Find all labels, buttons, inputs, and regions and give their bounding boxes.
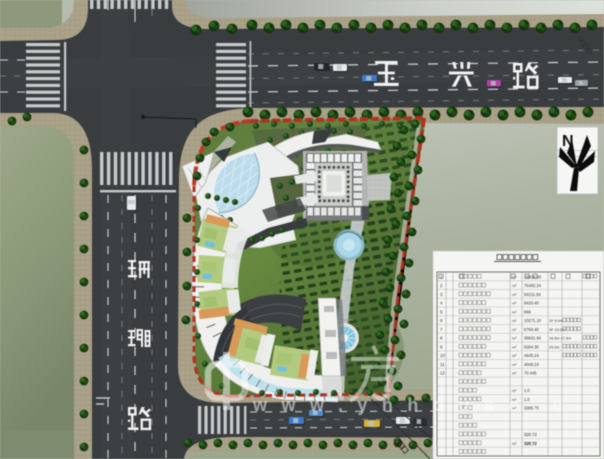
svg-text:54211.84: 54211.84: [524, 292, 541, 297]
svg-text:m²: m²: [512, 336, 517, 341]
svg-text:m²: m²: [512, 327, 517, 332]
svg-text:24.0m: 24.0m: [549, 345, 560, 349]
svg-text:36821.94: 36821.94: [524, 336, 542, 341]
svg-text:6756.40: 6756.40: [524, 327, 540, 332]
svg-text:m²: m²: [512, 353, 517, 358]
svg-text:m²: m²: [512, 301, 517, 306]
svg-text:m²: m²: [512, 318, 517, 323]
svg-text:m²: m²: [512, 362, 517, 367]
svg-text:www.ynhouse.c: www.ynhouse.c: [252, 395, 577, 415]
svg-text:10: 10: [440, 353, 445, 358]
svg-text:3F 15.0m: 3F 15.0m: [549, 328, 565, 332]
svg-text:1F 5.0m: 1F 5.0m: [549, 319, 563, 323]
svg-text:70.445: 70.445: [524, 371, 537, 376]
svg-text:16.5m 17.4m: 16.5m 17.4m: [549, 337, 571, 341]
svg-text:12: 12: [440, 371, 445, 376]
svg-text:320.72: 320.72: [524, 441, 537, 446]
svg-text:m²: m²: [512, 309, 517, 314]
svg-text:10271.10: 10271.10: [524, 318, 542, 323]
svg-text:8425.40: 8425.40: [524, 301, 540, 306]
svg-text:320.72: 320.72: [524, 432, 537, 437]
svg-text:6284.30: 6284.30: [524, 344, 540, 349]
svg-text:m²: m²: [512, 388, 517, 393]
svg-text:m²: m²: [512, 292, 517, 297]
svg-text:4645.24: 4645.24: [524, 353, 540, 358]
svg-text:1.0: 1.0: [524, 388, 530, 393]
svg-text:11: 11: [440, 362, 445, 367]
svg-text:76482.24: 76482.24: [524, 283, 542, 288]
svg-text:m²: m²: [512, 441, 517, 446]
svg-text:m²: m²: [512, 371, 517, 376]
svg-text:m²: m²: [512, 283, 517, 288]
svg-text:868: 868: [524, 309, 532, 314]
svg-text:4048.24: 4048.24: [524, 362, 540, 367]
svg-text:m²: m²: [512, 344, 517, 349]
